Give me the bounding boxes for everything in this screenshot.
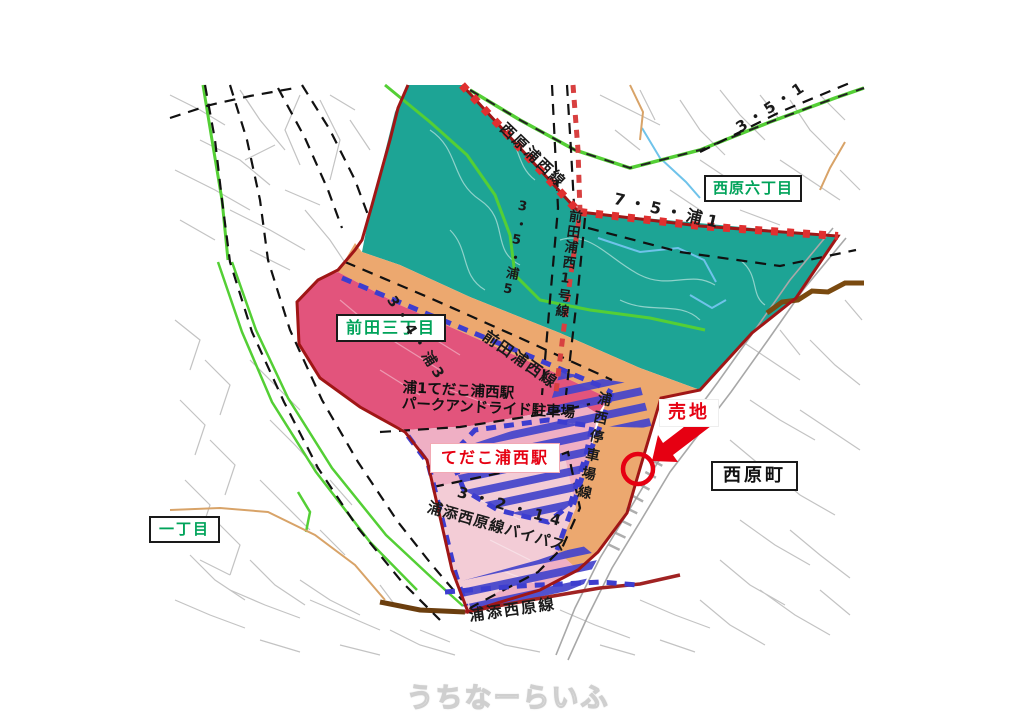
label-maeda-sanchome: 前田三丁目 <box>336 314 446 342</box>
label-nishihara-cho: 西原町 <box>711 461 798 491</box>
label-itchome: 一丁目 <box>149 516 220 543</box>
watermark: うちなーらいふ <box>406 676 609 715</box>
label-sale-land: 売地 <box>659 399 719 427</box>
green-road-left <box>203 85 228 260</box>
green-road-small <box>298 492 310 532</box>
zones <box>297 85 838 612</box>
label-nishihara-rokuchome: 西原六丁目 <box>704 175 802 202</box>
map-canvas: 西原六丁目 前田三丁目 一丁目 西原町 売地 てだこ浦西駅 浦1てだこ浦西駅 パ… <box>0 0 1024 726</box>
label-tedako-urnishi-station: てだこ浦西駅 <box>430 443 560 473</box>
